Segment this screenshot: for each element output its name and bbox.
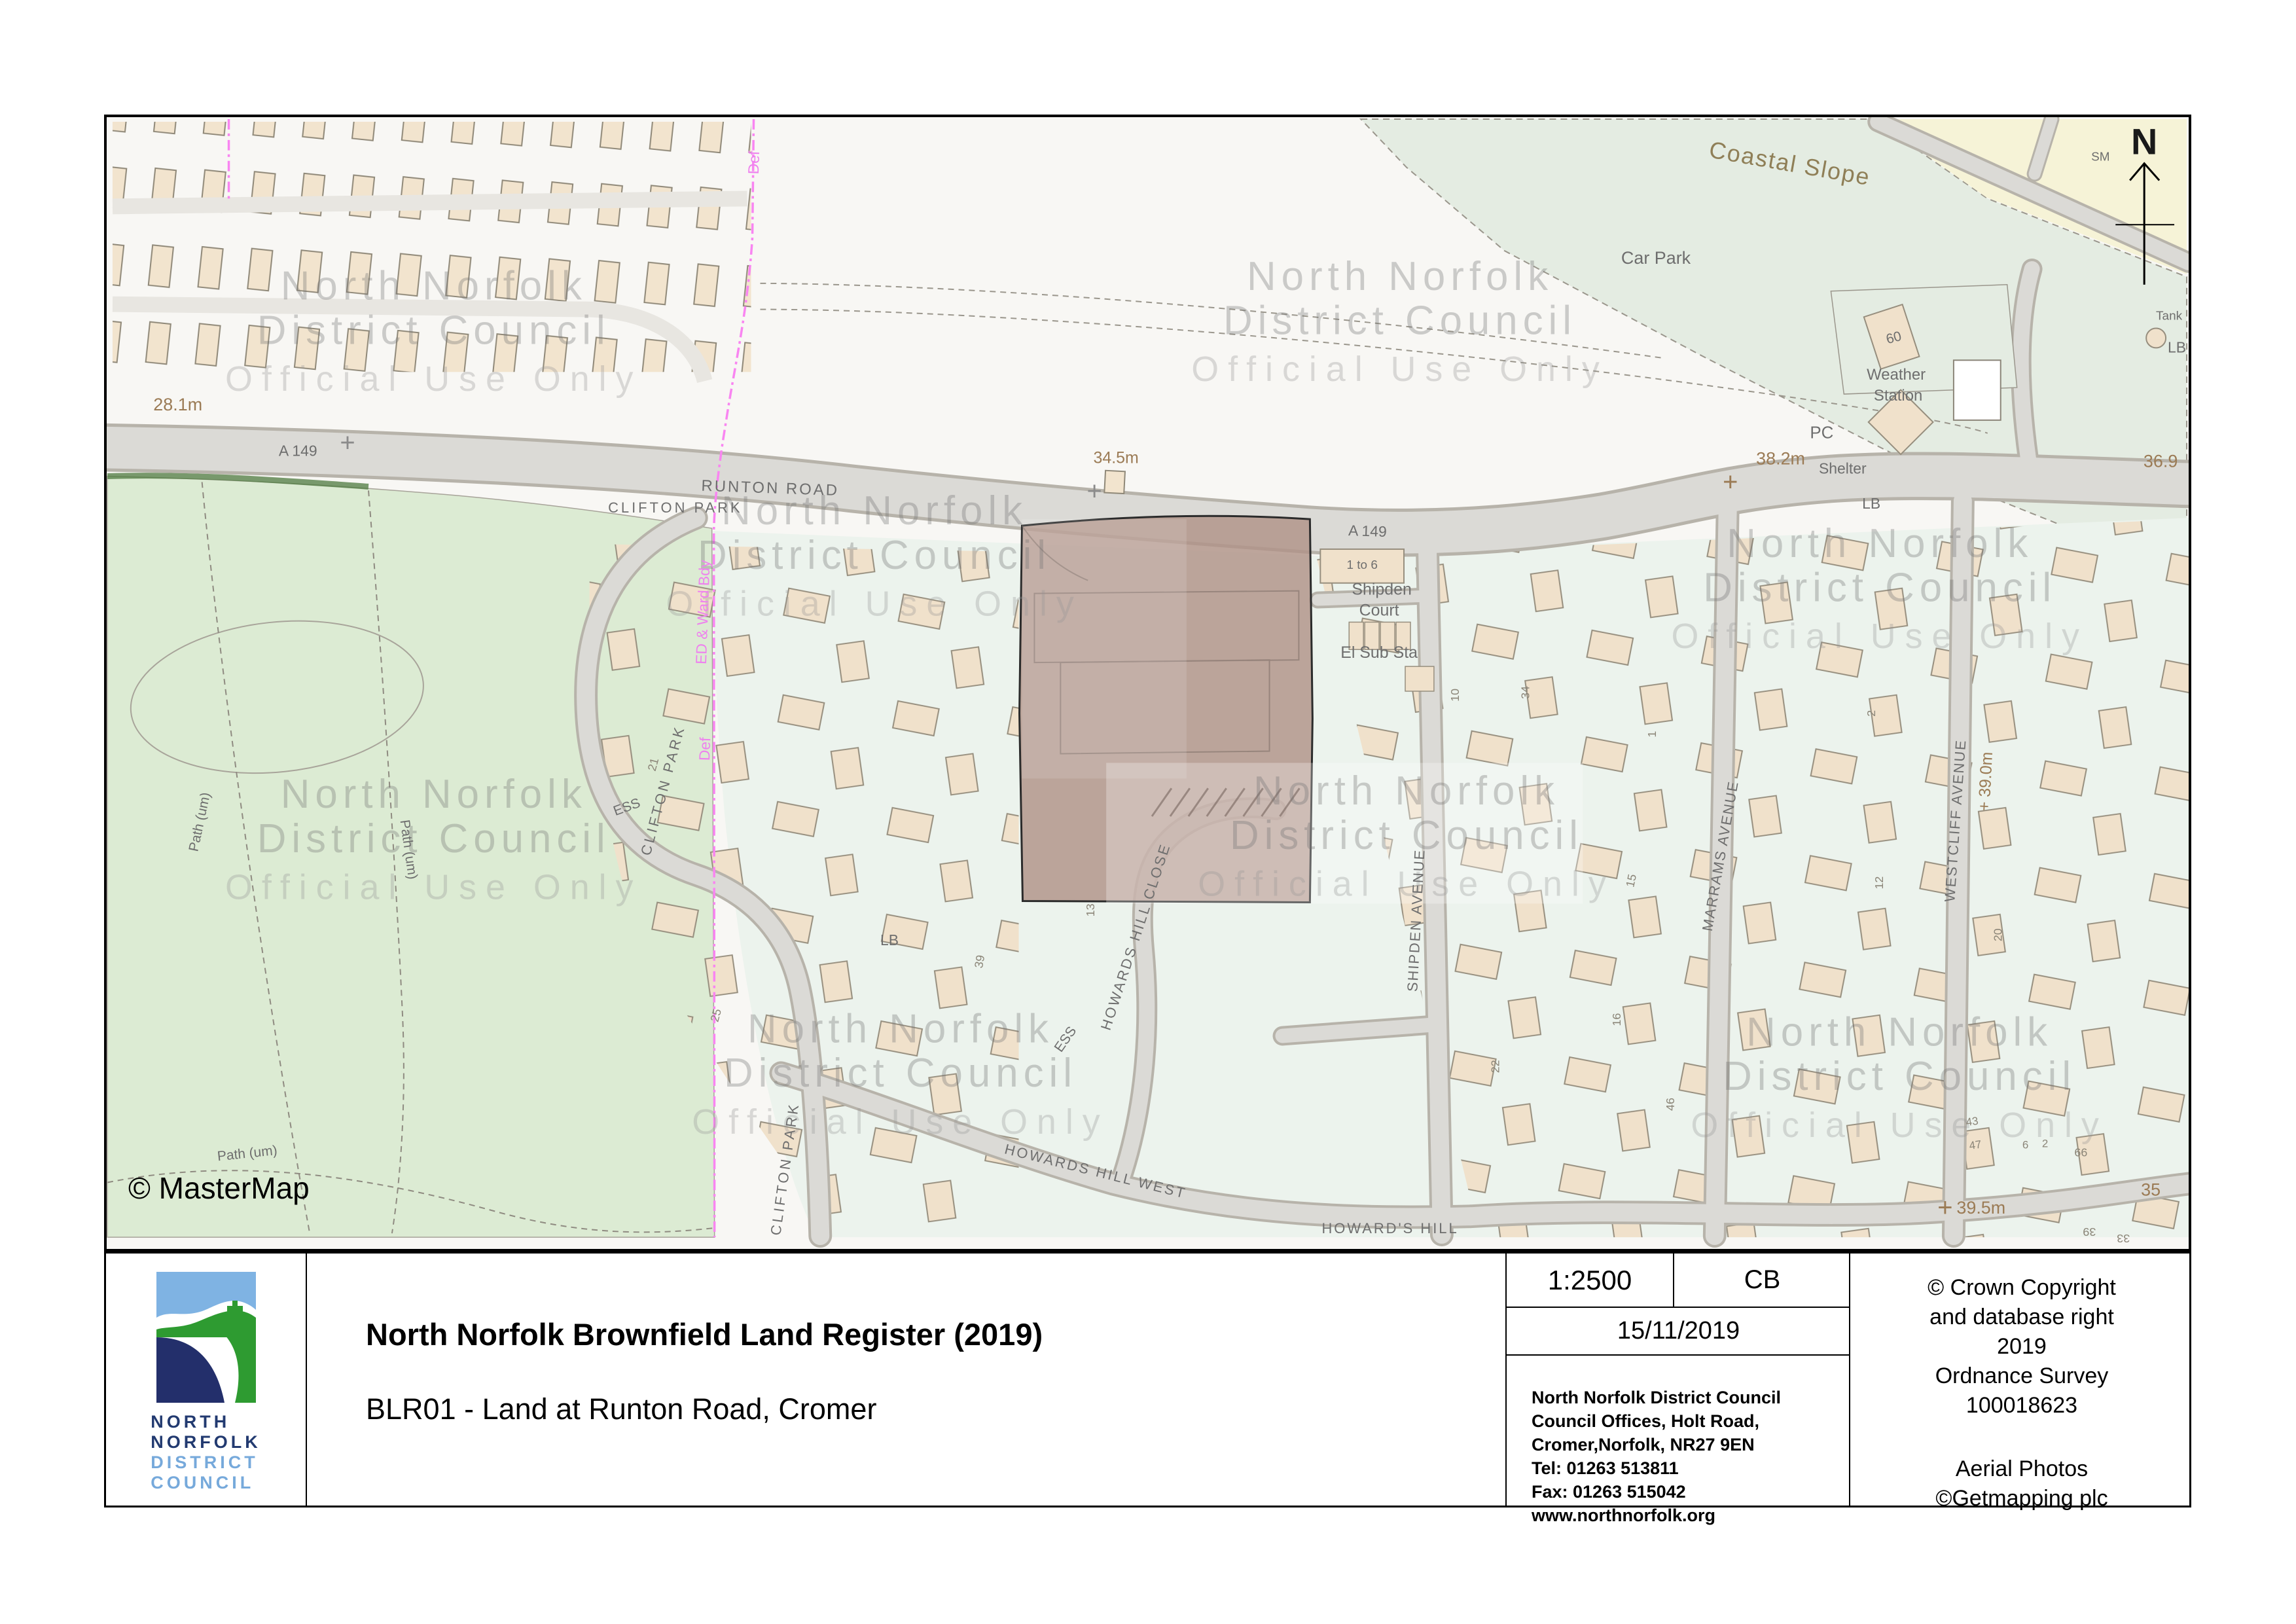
watermark-text: North Norfolk bbox=[1727, 521, 2033, 566]
address-line: Fax: 01263 515042 bbox=[1532, 1480, 1850, 1504]
watermark-text: Official Use Only bbox=[225, 359, 642, 399]
map-label: A 149 bbox=[279, 442, 317, 460]
map-label: Def bbox=[745, 151, 762, 175]
watermark-text: Official Use Only bbox=[225, 868, 642, 907]
map-label: 13 bbox=[1084, 903, 1097, 916]
map-label: Station bbox=[1874, 387, 1923, 405]
map-label: LB bbox=[1862, 495, 1880, 512]
map-label: 6 bbox=[2022, 1139, 2028, 1151]
map-label: + bbox=[340, 429, 355, 458]
map-label: Tank bbox=[2156, 310, 2183, 323]
map-label: 36.9 bbox=[2144, 452, 2178, 471]
scale-value: 1:2500 bbox=[1507, 1254, 1674, 1308]
map-label: + bbox=[1723, 467, 1738, 496]
map-label: 39 bbox=[972, 954, 987, 969]
map-label: 2 bbox=[1865, 710, 1878, 717]
map-label: SM bbox=[2091, 151, 2109, 164]
el-sub-sta-building bbox=[1405, 666, 1434, 691]
map-label: 39.5m bbox=[1956, 1198, 2005, 1218]
map-label: Def bbox=[696, 736, 713, 761]
page: { "map": { "mastermap": "© MasterMap", "… bbox=[0, 0, 2296, 1624]
watermark-text: North Norfolk bbox=[1746, 1009, 2053, 1055]
map-label: 33 bbox=[2117, 1232, 2130, 1245]
map-label: 1 to 6 bbox=[1346, 558, 1377, 572]
logo-word: DISTRICT bbox=[151, 1453, 260, 1473]
weather-station-building bbox=[1954, 360, 2001, 420]
map-label: Court bbox=[1359, 601, 1399, 619]
watermark-text: Official Use Only bbox=[692, 1102, 1109, 1142]
watermark-text: Official Use Only bbox=[1198, 865, 1615, 904]
map-label: + bbox=[1087, 477, 1102, 505]
address-line: North Norfolk District Council bbox=[1532, 1386, 1850, 1409]
watermark-text: District Council bbox=[698, 533, 1051, 578]
watermark-text: District Council bbox=[1703, 566, 2056, 611]
map-label: 16 bbox=[1610, 1013, 1623, 1026]
document-title: North Norfolk Brownfield Land Register (… bbox=[366, 1316, 1043, 1352]
map-label: + 39.0m bbox=[1975, 751, 1996, 812]
map-label: LB bbox=[880, 931, 899, 948]
map-label: Car Park bbox=[1621, 248, 1691, 268]
map-label: 10 bbox=[1448, 689, 1462, 702]
council-logo-cell: NORTH NORFOLK DISTRICT COUNCIL bbox=[106, 1254, 307, 1506]
map-svg: N North NorfolkDistrict CouncilOfficial … bbox=[107, 117, 2189, 1249]
council-address: North Norfolk District Council Council O… bbox=[1507, 1356, 1850, 1509]
watermark-text: Official Use Only bbox=[666, 585, 1083, 624]
map-label: Shelter bbox=[1819, 460, 1867, 477]
map-label: Shipden bbox=[1352, 581, 1412, 599]
map-label: 38.2m bbox=[1756, 449, 1805, 469]
title-cell: North Norfolk Brownfield Land Register (… bbox=[307, 1254, 1507, 1506]
map-label: Weather bbox=[1867, 366, 1926, 384]
watermark-text: North Norfolk bbox=[1253, 768, 1560, 814]
council-logo-icon bbox=[156, 1272, 256, 1403]
map-label: 39 bbox=[2083, 1225, 2096, 1238]
aerial-credit-line: Aerial Photos bbox=[1850, 1454, 2193, 1484]
map-label: ED & Ward Bdy bbox=[692, 560, 713, 665]
map-label: El Sub Sta bbox=[1340, 643, 1418, 662]
watermark-text: District Council bbox=[257, 816, 611, 861]
map-label: 47 bbox=[1968, 1138, 1982, 1152]
watermark-text: North Norfolk bbox=[281, 772, 587, 817]
map-label: 1 bbox=[1645, 731, 1659, 738]
map-label: 34.5m bbox=[1093, 449, 1138, 467]
document-subtitle: BLR01 - Land at Runton Road, Cromer bbox=[366, 1392, 876, 1426]
watermark-text: Official Use Only bbox=[1191, 350, 1608, 389]
address-line: Cromer,Norfolk, NR27 9EN bbox=[1532, 1433, 1850, 1456]
map-label: PC bbox=[1810, 424, 1833, 442]
meta-cell: 1:2500 CB 15/11/2019 North Norfolk Distr… bbox=[1507, 1254, 1850, 1506]
watermark-text: Official Use Only bbox=[1671, 617, 2088, 656]
watermark-text: District Council bbox=[1223, 298, 1577, 344]
watermark-text: District Council bbox=[724, 1051, 1077, 1096]
logo-word: COUNCIL bbox=[151, 1473, 260, 1493]
map-label: 34 bbox=[1519, 686, 1532, 699]
watermark-text: North Norfolk bbox=[281, 264, 587, 309]
copyright-line: © Crown Copyright bbox=[1850, 1273, 2193, 1303]
map-label: 20 bbox=[1992, 928, 2005, 941]
map-label: 43 bbox=[1965, 1115, 1979, 1128]
title-block: NORTH NORFOLK DISTRICT COUNCIL North Nor… bbox=[104, 1252, 2191, 1507]
copyright-line: 100018623 bbox=[1850, 1391, 2193, 1420]
map-label: CLIFTON PARK bbox=[608, 499, 742, 516]
address-line: Tel: 01263 513811 bbox=[1532, 1456, 1850, 1480]
copyright-line: 2019 bbox=[1850, 1332, 2193, 1362]
watermark-text: North Norfolk bbox=[1247, 254, 1553, 299]
council-logo-wordmark: NORTH NORFOLK DISTRICT COUNCIL bbox=[151, 1412, 260, 1493]
watermark-text: District Council bbox=[1723, 1054, 2076, 1099]
address-line: www.northnorfolk.org bbox=[1532, 1504, 1850, 1527]
watermark-text: District Council bbox=[1230, 813, 1583, 858]
north-arrow-label: N bbox=[2131, 121, 2157, 162]
map-label: 12 bbox=[1873, 876, 1886, 890]
map-label: LB bbox=[2168, 338, 2186, 355]
watermark-text: District Council bbox=[257, 308, 611, 353]
map-label: 2 bbox=[2042, 1138, 2048, 1150]
map-label: 35 bbox=[2141, 1180, 2161, 1199]
map-label: 28.1m bbox=[153, 395, 202, 414]
address-line: Council Offices, Holt Road, bbox=[1532, 1409, 1850, 1433]
map-label: 22 bbox=[1489, 1060, 1502, 1073]
map-label: 15 bbox=[1623, 873, 1639, 889]
copyright-line: Ordnance Survey bbox=[1850, 1362, 2193, 1391]
watermark-text: North Norfolk bbox=[747, 1007, 1054, 1052]
caravan-road bbox=[113, 198, 747, 206]
map-canvas: N North NorfolkDistrict CouncilOfficial … bbox=[104, 115, 2191, 1252]
aerial-credit-line: ©Getmapping plc bbox=[1850, 1484, 2193, 1513]
copyright-cell: © Crown Copyright and database right 201… bbox=[1850, 1254, 2193, 1506]
tank bbox=[2146, 329, 2166, 348]
map-label: 46 bbox=[1664, 1098, 1677, 1111]
copyright-line: and database right bbox=[1850, 1303, 2193, 1332]
date-value: 15/11/2019 bbox=[1507, 1308, 1850, 1356]
map-label: HOWARD'S HILL bbox=[1321, 1220, 1458, 1236]
author-initials: CB bbox=[1674, 1254, 1850, 1308]
logo-word: NORTH bbox=[151, 1412, 260, 1432]
map-label: A 149 bbox=[1348, 522, 1388, 540]
map-label: + bbox=[1937, 1193, 1952, 1222]
mastermap-credit: © MasterMap bbox=[128, 1170, 310, 1206]
logo-word: NORFOLK bbox=[151, 1432, 260, 1453]
map-label: 66 bbox=[2074, 1146, 2087, 1159]
